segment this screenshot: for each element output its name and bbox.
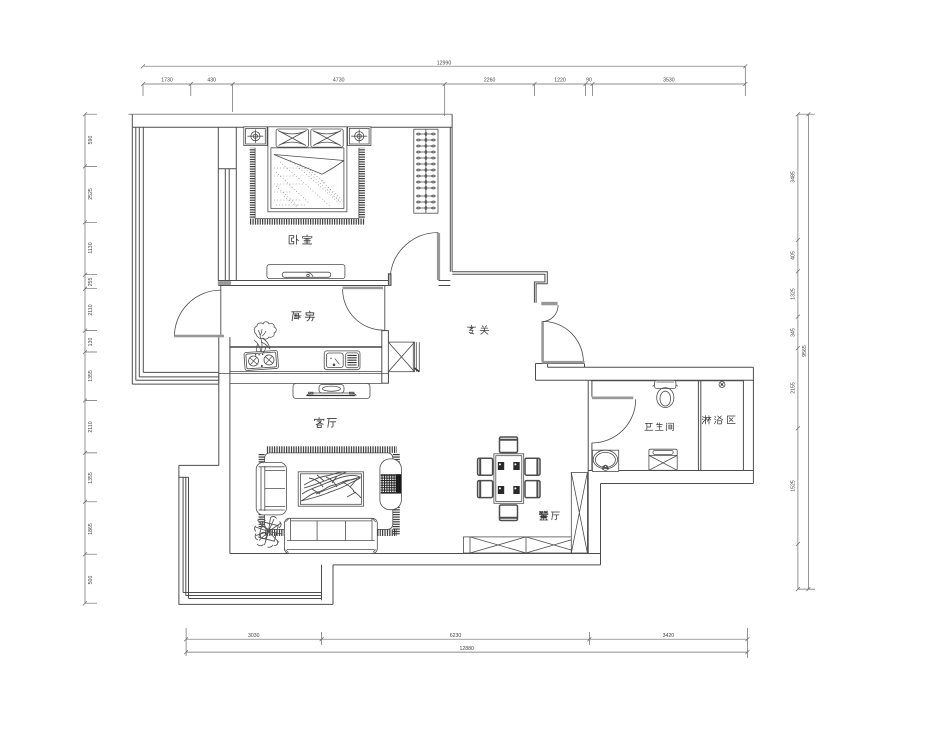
svg-text:1220: 1220 — [554, 78, 566, 84]
svg-text:430: 430 — [207, 78, 216, 84]
svg-text:9565: 9565 — [802, 345, 808, 357]
svg-text:2260: 2260 — [484, 78, 496, 84]
svg-text:255: 255 — [88, 278, 94, 287]
svg-text:2525: 2525 — [88, 188, 94, 200]
svg-text:12880: 12880 — [459, 646, 474, 652]
svg-text:500: 500 — [88, 576, 94, 585]
svg-text:6230: 6230 — [450, 633, 462, 639]
svg-text:345: 345 — [791, 328, 797, 337]
svg-text:90: 90 — [586, 78, 592, 84]
svg-text:130: 130 — [88, 338, 94, 347]
svg-text:3030: 3030 — [248, 633, 260, 639]
svg-text:2155: 2155 — [791, 382, 797, 394]
svg-text:1130: 1130 — [88, 242, 94, 253]
svg-text:1325: 1325 — [791, 288, 797, 300]
svg-text:1730: 1730 — [161, 78, 173, 84]
svg-text:3485: 3485 — [791, 171, 797, 183]
svg-text:405: 405 — [791, 251, 797, 260]
svg-text:3420: 3420 — [663, 633, 675, 639]
svg-text:12990: 12990 — [437, 61, 452, 67]
svg-text:590: 590 — [88, 136, 94, 145]
svg-text:1865: 1865 — [88, 523, 94, 535]
svg-text:1355: 1355 — [88, 370, 94, 382]
svg-text:2110: 2110 — [88, 421, 94, 432]
svg-text:4730: 4730 — [333, 78, 345, 84]
svg-text:1355: 1355 — [88, 472, 94, 484]
svg-text:1525: 1525 — [791, 480, 797, 492]
svg-text:2110: 2110 — [88, 304, 94, 315]
svg-text:3530: 3530 — [663, 78, 675, 84]
